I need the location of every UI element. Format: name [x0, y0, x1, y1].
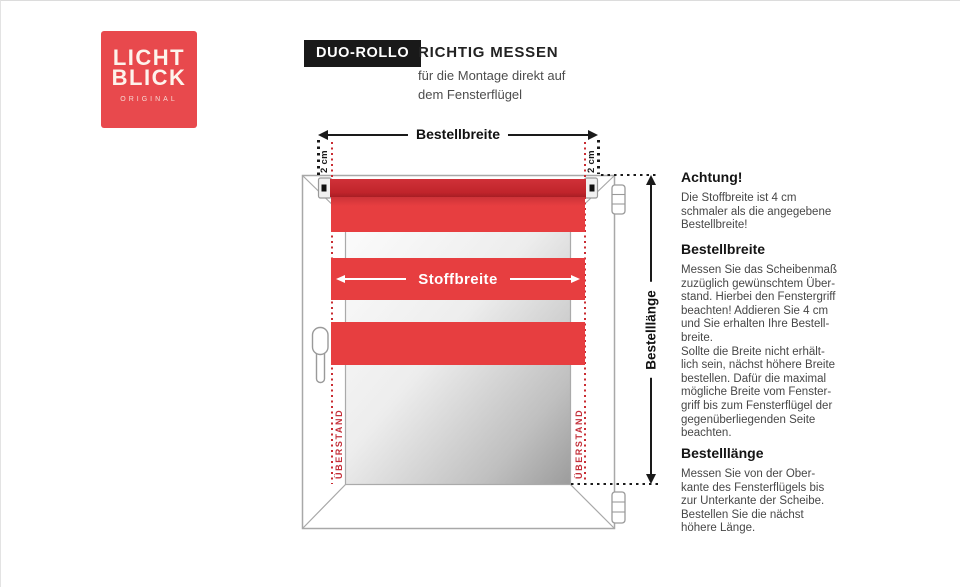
bestellbreite-label: Bestellbreite	[408, 126, 508, 142]
bestelllaenge-label: Bestelllänge	[640, 282, 663, 378]
blind-cassette-tube	[330, 179, 586, 197]
offset-label-left: 2 cm	[319, 150, 330, 173]
bracket-right	[585, 178, 598, 198]
arrowhead-down-icon	[646, 474, 656, 484]
hinge-bottom	[612, 492, 625, 523]
bestelllaenge-arrow: Bestelllänge	[645, 175, 657, 484]
blind-stripe-middle: Stoffbreite	[331, 258, 585, 300]
ueberstand-label-right: ÜBERSTAND	[574, 409, 584, 479]
page: LICHT BLICK ORIGINAL DUO-ROLLO RICHTIG M…	[0, 0, 960, 587]
arrowhead-right-icon	[588, 130, 598, 140]
stoffbreite-arrowhead-right	[571, 275, 580, 283]
stoffbreite-label: Stoffbreite	[406, 271, 509, 288]
offset-label-right: 2 cm	[586, 150, 597, 173]
blind-stripe-bottom	[331, 322, 585, 365]
width-guide-right	[597, 140, 600, 174]
stoffbreite-arrow-line-left	[345, 278, 406, 280]
stoffbreite-arrowhead-left	[336, 275, 345, 283]
ueberstand-label-left: ÜBERSTAND	[334, 409, 344, 479]
blind-stripe-top	[331, 197, 585, 232]
hinge-top	[612, 185, 625, 214]
stoffbreite-arrow-line-right	[510, 278, 571, 280]
bestellbreite-arrow: Bestellbreite	[318, 129, 598, 141]
